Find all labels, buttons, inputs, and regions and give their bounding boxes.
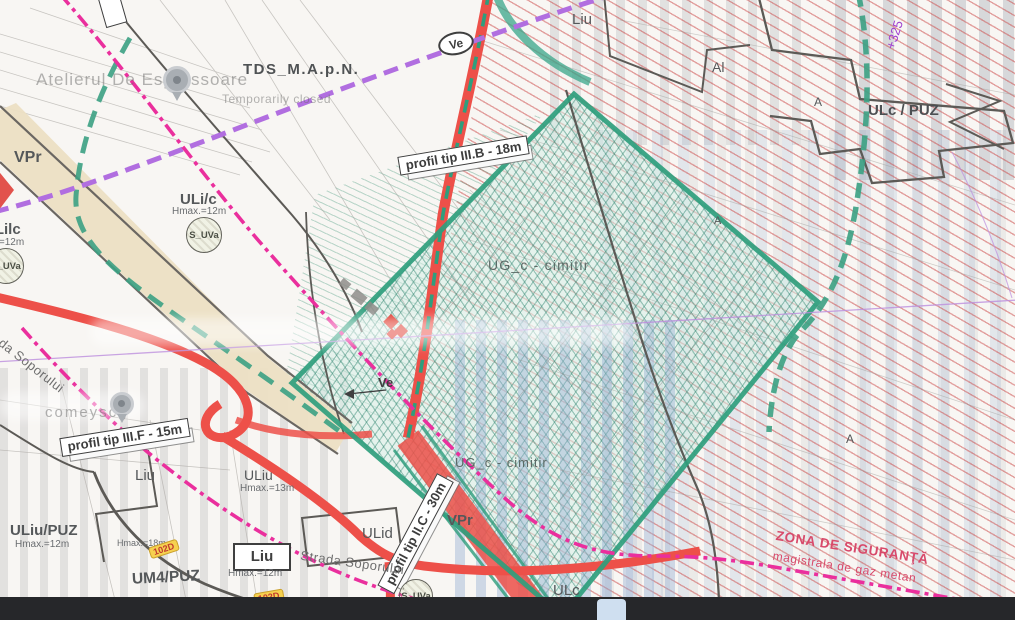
watermark-band	[90, 318, 635, 346]
suva-circle: S_UVa	[186, 217, 222, 253]
place-status-watermark: Temporarily closed	[222, 92, 331, 106]
zone-label-a-e: A	[714, 216, 721, 228]
liu-box-hmax: Hmax.=12m	[228, 569, 282, 580]
zone-label-liu-north: Liu	[572, 12, 592, 28]
parcel-lines-cemetery	[420, 130, 760, 500]
zone-label-uliu-puz: ULiu/PUZ	[10, 523, 78, 539]
zone-label-ulc-puz: ULc / PUZ	[868, 103, 939, 119]
hmax18-label: Hmax.=18m	[117, 539, 151, 548]
zone-label-a-ne: A	[814, 96, 822, 109]
ve-label: Ve	[378, 376, 393, 390]
zone-label-ulilc-clipped: ULilc	[0, 222, 21, 238]
bottom-bar	[0, 597, 1015, 620]
place-pin-icon[interactable]	[110, 392, 134, 416]
place-watermark: Atelierul De Espressoare	[36, 70, 248, 90]
map-canvas[interactable]: Atelierul De Espressoare Temporarily clo…	[0, 0, 1015, 620]
zone-label-ug-cimitir-2: UG_c - cimitir	[455, 456, 548, 470]
zone-label-ug-cimitir-1: UG_c - cimitir	[488, 258, 590, 273]
zone-label-uliu: ULiu	[244, 468, 273, 483]
map-linework	[0, 0, 1015, 620]
liu-boxed-label: Liu	[233, 543, 291, 571]
zone-label-uliu-hmax: Hmax.=13m	[240, 484, 294, 495]
zone-label-liu-west: Liu	[135, 468, 155, 484]
place-pin-icon[interactable]	[163, 66, 191, 94]
ve-leader-arrow	[344, 389, 386, 399]
zone-label-ulic-hmax: Hmax.=12m	[172, 207, 226, 218]
zone-label-a-se: A	[846, 433, 854, 446]
zone-label-uliu-puz-hmax: Hmax.=12m	[15, 540, 69, 551]
liu-boxed-text: Liu	[251, 549, 274, 565]
zone-label-vpr-mid: VPr	[447, 513, 473, 529]
zone-label-al: Al	[712, 60, 724, 75]
zone-label-tds: TDS_M.A.p.N.	[243, 62, 359, 78]
zone-label-ulilc-hmax-clipped: Hmax.=12m	[0, 238, 24, 249]
bottom-bar-notch	[597, 599, 626, 620]
thin-violet-line	[952, 152, 1012, 298]
zone-label-vpr-nw: VPr	[14, 150, 42, 167]
zone-label-ulid: ULid	[362, 526, 393, 542]
